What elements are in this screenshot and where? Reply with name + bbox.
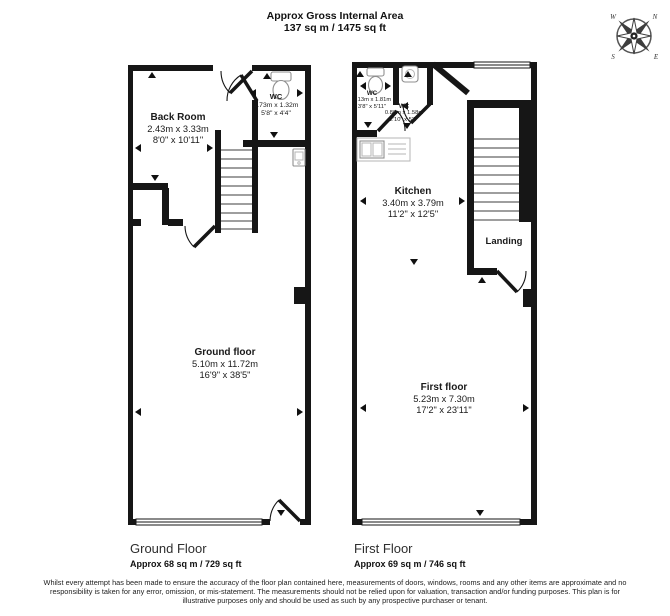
room-label-ground-floor: Ground floor 5.10m x 11.72m 16'9" x 38'5… (165, 347, 285, 381)
room-label-wc2-first: WC 0.86m x 1.58m 2'10" x 5'2" (377, 103, 431, 124)
compass-north-label: N (652, 13, 658, 21)
pillar (294, 287, 305, 304)
landing-door (497, 271, 526, 292)
hall-door (185, 226, 215, 247)
first-floor-caption: First Floor Approx 69 sq m / 746 sq ft (354, 541, 554, 570)
room-label-first-floor: First floor 5.23m x 7.30m 17'2" x 23'11" (384, 382, 504, 416)
window (136, 519, 262, 525)
title-line1: Approx Gross Internal Area (215, 10, 455, 22)
room-label-landing: Landing (475, 236, 533, 247)
diagonal-wall (433, 64, 468, 93)
staircase (474, 139, 519, 220)
floorplan-page: W N S E Approx Gross Internal Area 137 s… (0, 0, 670, 616)
kitchen-sink-icon (357, 138, 410, 161)
first-floor-plan (352, 62, 537, 525)
compass-south-label: S (611, 53, 615, 61)
window (362, 519, 520, 525)
page-title: Approx Gross Internal Area 137 sq m / 14… (215, 10, 455, 35)
staircase (221, 150, 252, 229)
title-line2: 137 sq m / 1475 sq ft (215, 22, 455, 34)
compass-east-label: E (653, 53, 659, 61)
compass-rose-icon: W N S E (610, 13, 659, 61)
rear-door (270, 500, 300, 521)
pillar (523, 289, 531, 307)
disclaimer-text: Whilst every attempt has been made to en… (35, 579, 635, 605)
ground-floor-caption: Ground Floor Approx 68 sq m / 729 sq ft (130, 541, 330, 570)
floorplan-canvas: W N S E (0, 0, 670, 616)
compass-west-label: W (610, 13, 617, 21)
sink-icon (293, 149, 305, 166)
window (474, 62, 530, 68)
room-label-back-room: Back Room 2.43m x 3.33m 8'0" x 10'11" (126, 112, 230, 146)
room-label-wc-ground: WC 1.73m x 1.32m 5'8" x 4'4" (240, 93, 312, 118)
room-label-kitchen: Kitchen 3.40m x 3.79m 11'2" x 12'5" (353, 186, 473, 220)
